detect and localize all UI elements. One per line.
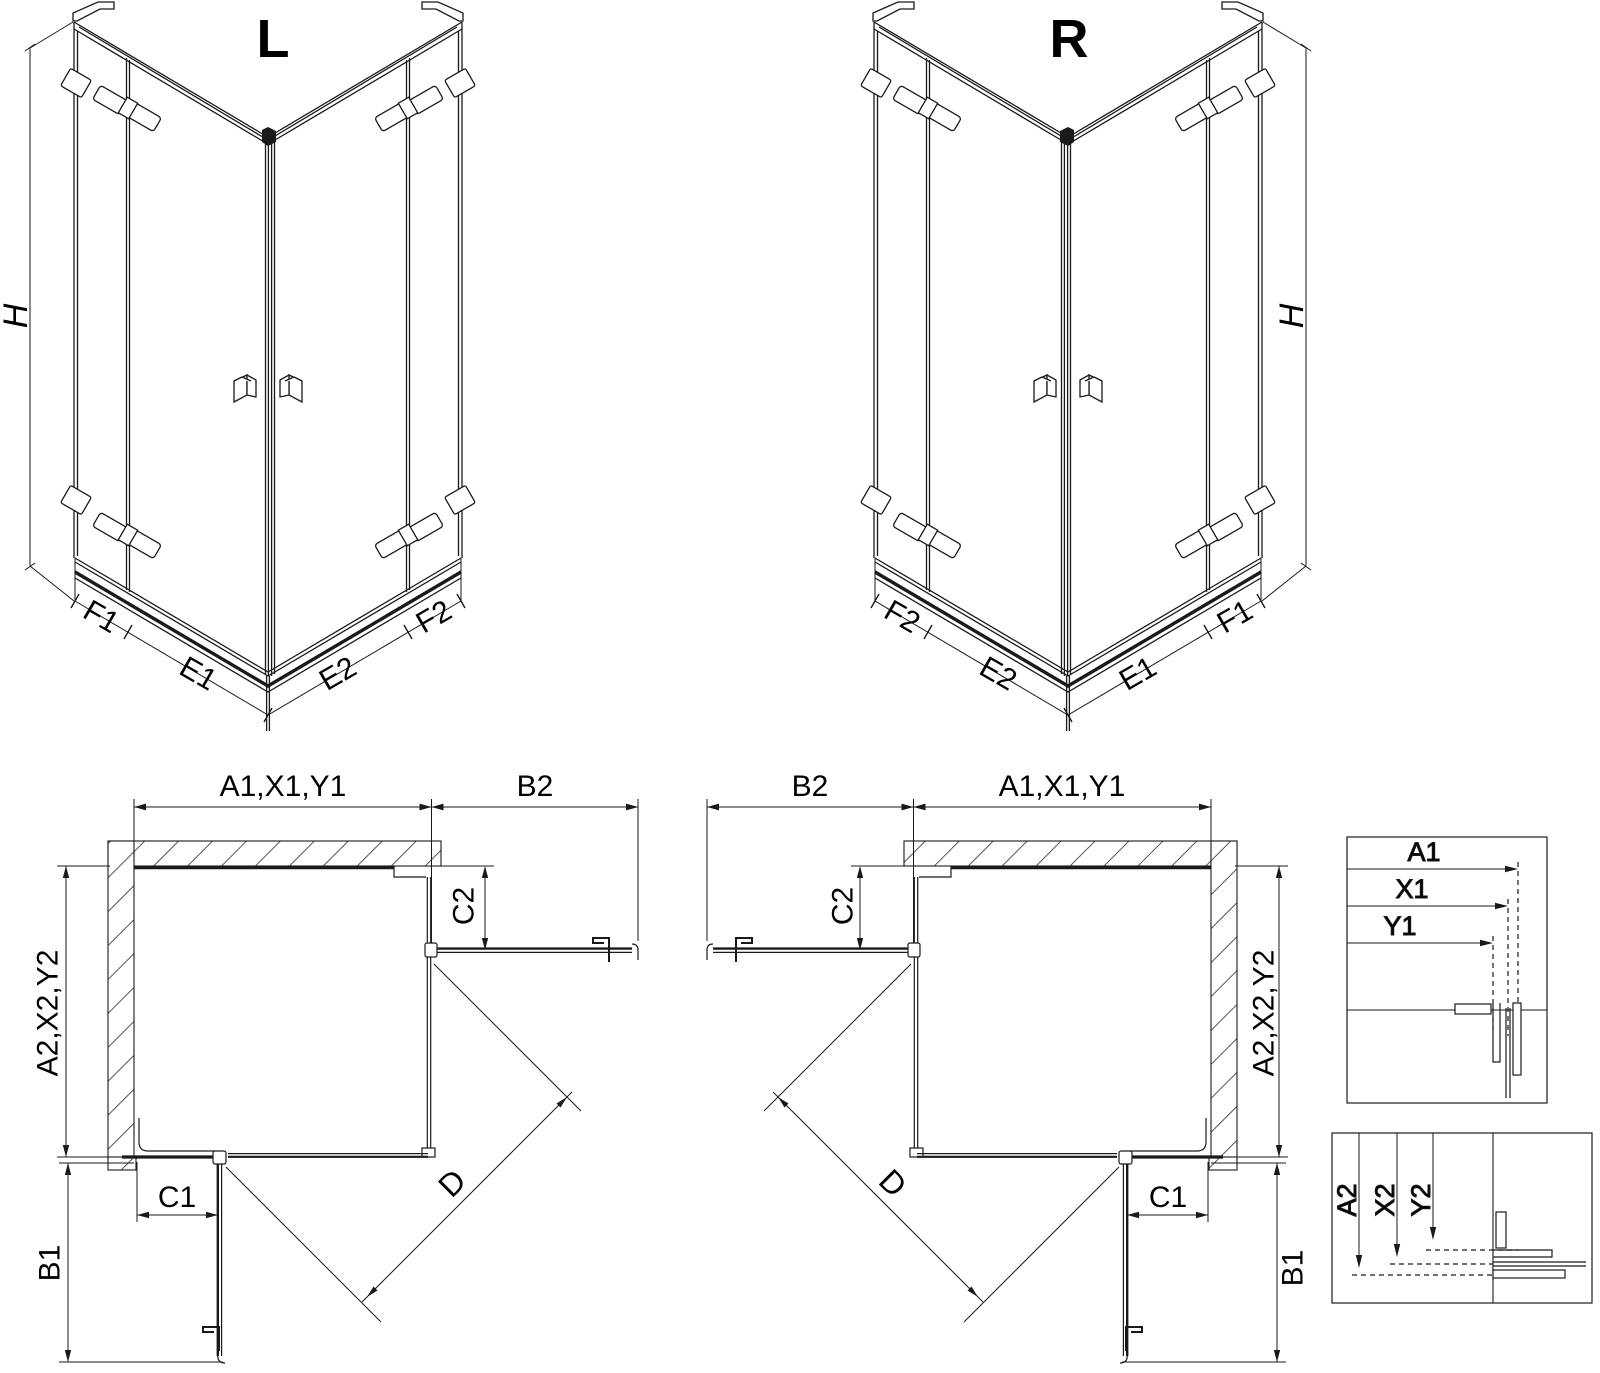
dim-label-e1-left: E1 (174, 651, 222, 698)
dim-label-f2-right: F2 (879, 594, 926, 640)
dim-label-f1-left: F1 (78, 594, 125, 640)
dim-label-f2-left: F2 (411, 594, 458, 640)
dim-label-c1-left-plan: C1 (158, 1181, 196, 1214)
dim-label-c2-left-plan: C2 (448, 887, 481, 925)
dim-label-c2-right-plan: C2 (827, 887, 860, 925)
dim-label-e2-left: E2 (314, 651, 362, 698)
dim-label-width-top-right-plan: A1,X1,Y1 (999, 770, 1126, 803)
detail-label-x2: X2 (1370, 1183, 1400, 1216)
variant-title-left: L (257, 9, 290, 69)
plan-view-right: A1,X1,Y1 B2 A2,X2,Y2 C2 C1 B1 D (707, 770, 1310, 1363)
detail-label-a1: A1 (1407, 837, 1440, 867)
wall-section-side-left-plan (108, 841, 134, 1160)
wall-section-side-right-plan (1211, 841, 1237, 1160)
dim-label-b1-left-plan: B1 (34, 1245, 67, 1282)
variant-title-right: R (1050, 9, 1089, 69)
dim-label-depth-left-plan: A2,X2,Y2 (32, 950, 65, 1077)
dim-label-f1-right: F1 (1212, 594, 1259, 640)
shower-enclosure-diagram: L H F1 E1 E2 F2 R H F2 E2 E1 F1 A1,X1,Y1… (0, 0, 1600, 1373)
profile-section-width (1455, 1003, 1521, 1098)
dim-label-height-right: H (1273, 303, 1311, 328)
dim-label-return-right-plan: B2 (792, 770, 829, 803)
detail-label-y2: Y2 (1406, 1183, 1436, 1216)
dim-label-b1-right-plan: B1 (1277, 1250, 1310, 1287)
wall-section-top-right-plan (904, 841, 1237, 866)
technical-drawing-page: L H F1 E1 E2 F2 R H F2 E2 E1 F1 A1,X1,Y1… (0, 0, 1600, 1373)
iso-view-right: R H F2 E2 E1 F1 (861, 2, 1311, 731)
detail-label-a2: A2 (1332, 1183, 1362, 1216)
plan-linework-left (57, 799, 638, 1363)
dim-label-c1-right-plan: C1 (1149, 1181, 1187, 1214)
wall-section-top-left-plan (108, 841, 441, 866)
detail-view-width: A1 X1 Y1 (1347, 837, 1547, 1103)
dim-label-return-left-plan: B2 (517, 770, 554, 803)
dim-label-e2-right: E2 (974, 651, 1022, 698)
detail-view-depth: A2 X2 Y2 (1332, 1133, 1592, 1303)
dim-label-width-top-left-plan: A1,X1,Y1 (220, 770, 347, 803)
detail-label-x1: X1 (1395, 874, 1428, 904)
iso-view-left: L H F1 E1 E2 F2 (0, 2, 475, 731)
detail-label-y1: Y1 (1383, 911, 1416, 941)
dim-label-e1-right: E1 (1114, 651, 1162, 698)
dim-label-depth-right-plan: A2,X2,Y2 (1248, 950, 1281, 1077)
plan-view-left: A1,X1,Y1 B2 A2,X2,Y2 C2 C1 B1 D (32, 770, 639, 1363)
profile-section-depth (1493, 1212, 1586, 1278)
plan-linework-right (707, 799, 1288, 1363)
dim-label-height-left: H (0, 303, 35, 328)
